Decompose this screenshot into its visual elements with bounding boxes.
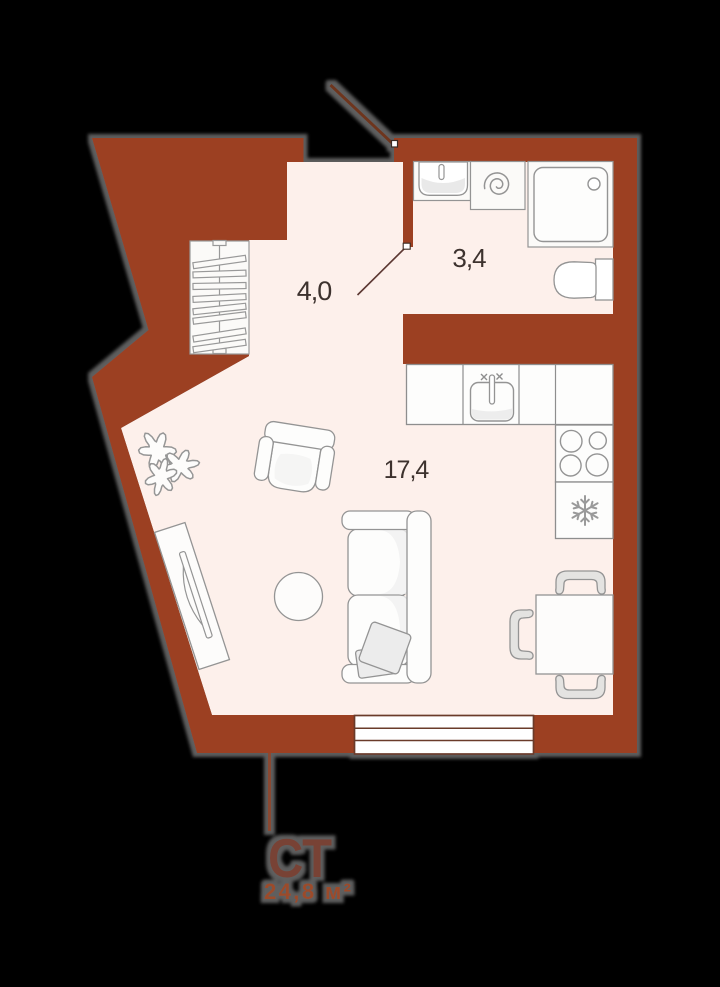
svg-text:17,4: 17,4	[384, 456, 430, 484]
svg-text:3,4: 3,4	[452, 243, 486, 273]
svg-text:4,0: 4,0	[297, 276, 332, 306]
